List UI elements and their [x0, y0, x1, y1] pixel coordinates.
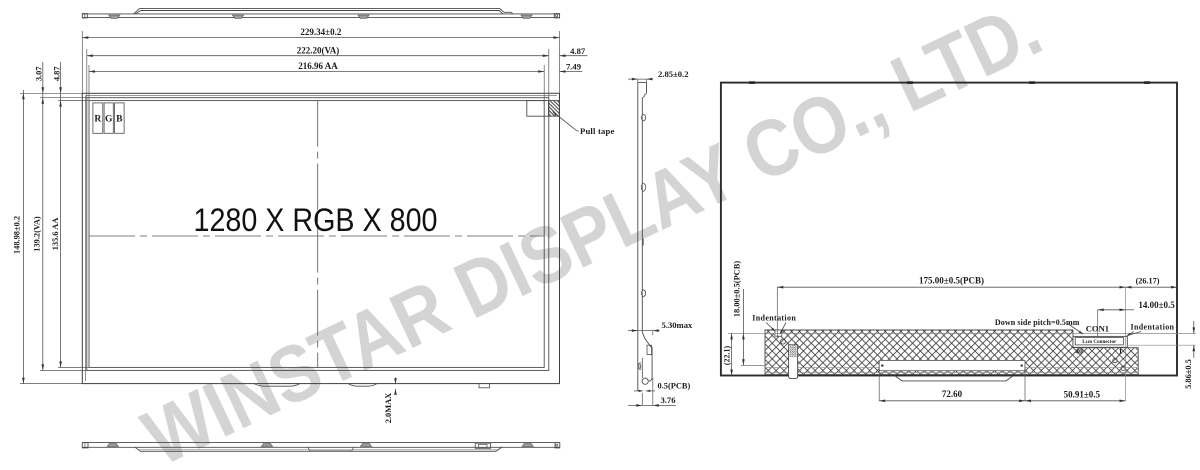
svg-text:216.96 AA: 216.96 AA — [298, 61, 338, 71]
svg-text:CON1: CON1 — [1086, 323, 1109, 333]
svg-text:B: B — [116, 115, 123, 125]
svg-text:(22.1): (22.1) — [723, 346, 732, 366]
svg-text:Pull tape: Pull tape — [580, 126, 615, 136]
svg-text:(26.17): (26.17) — [1136, 277, 1160, 286]
svg-text:3.76: 3.76 — [660, 395, 676, 405]
svg-text:139.2(VA): 139.2(VA) — [32, 216, 41, 252]
svg-text:40: 40 — [1075, 346, 1083, 355]
svg-text:72.60: 72.60 — [942, 389, 963, 399]
svg-text:135.6 AA: 135.6 AA — [51, 218, 60, 251]
svg-text:4.87: 4.87 — [52, 66, 61, 81]
svg-text:2.85±0.2: 2.85±0.2 — [658, 69, 689, 79]
svg-text:Lcm Connector: Lcm Connector — [1082, 339, 1117, 345]
svg-text:7.49: 7.49 — [566, 62, 581, 72]
svg-text:50.91±0.5: 50.91±0.5 — [1064, 390, 1101, 400]
svg-text:1280 X RGB X 800: 1280 X RGB X 800 — [194, 202, 438, 238]
svg-text:G: G — [105, 115, 113, 125]
svg-text:0.5(PCB): 0.5(PCB) — [658, 382, 691, 391]
svg-text:1: 1 — [1119, 346, 1123, 355]
svg-text:18.00±0.5(PCB): 18.00±0.5(PCB) — [732, 261, 741, 317]
svg-text:R: R — [94, 115, 101, 125]
svg-text:4.87: 4.87 — [570, 46, 586, 56]
svg-text:148.98±0.2: 148.98±0.2 — [12, 216, 21, 254]
svg-text:229.34±0.2: 229.34±0.2 — [300, 27, 341, 37]
svg-text:5.30max: 5.30max — [662, 320, 693, 330]
svg-text:3.07: 3.07 — [35, 66, 44, 81]
svg-text:222.20(VA): 222.20(VA) — [297, 45, 340, 55]
svg-text:175.00±0.5(PCB): 175.00±0.5(PCB) — [919, 276, 984, 286]
svg-text:5.86±0.5: 5.86±0.5 — [1184, 359, 1193, 389]
svg-text:14.00±0.5: 14.00±0.5 — [1138, 300, 1175, 310]
svg-text:Indentation: Indentation — [752, 314, 796, 323]
svg-text:2.0MAX: 2.0MAX — [384, 393, 393, 423]
svg-text:Indentation: Indentation — [1131, 323, 1175, 332]
